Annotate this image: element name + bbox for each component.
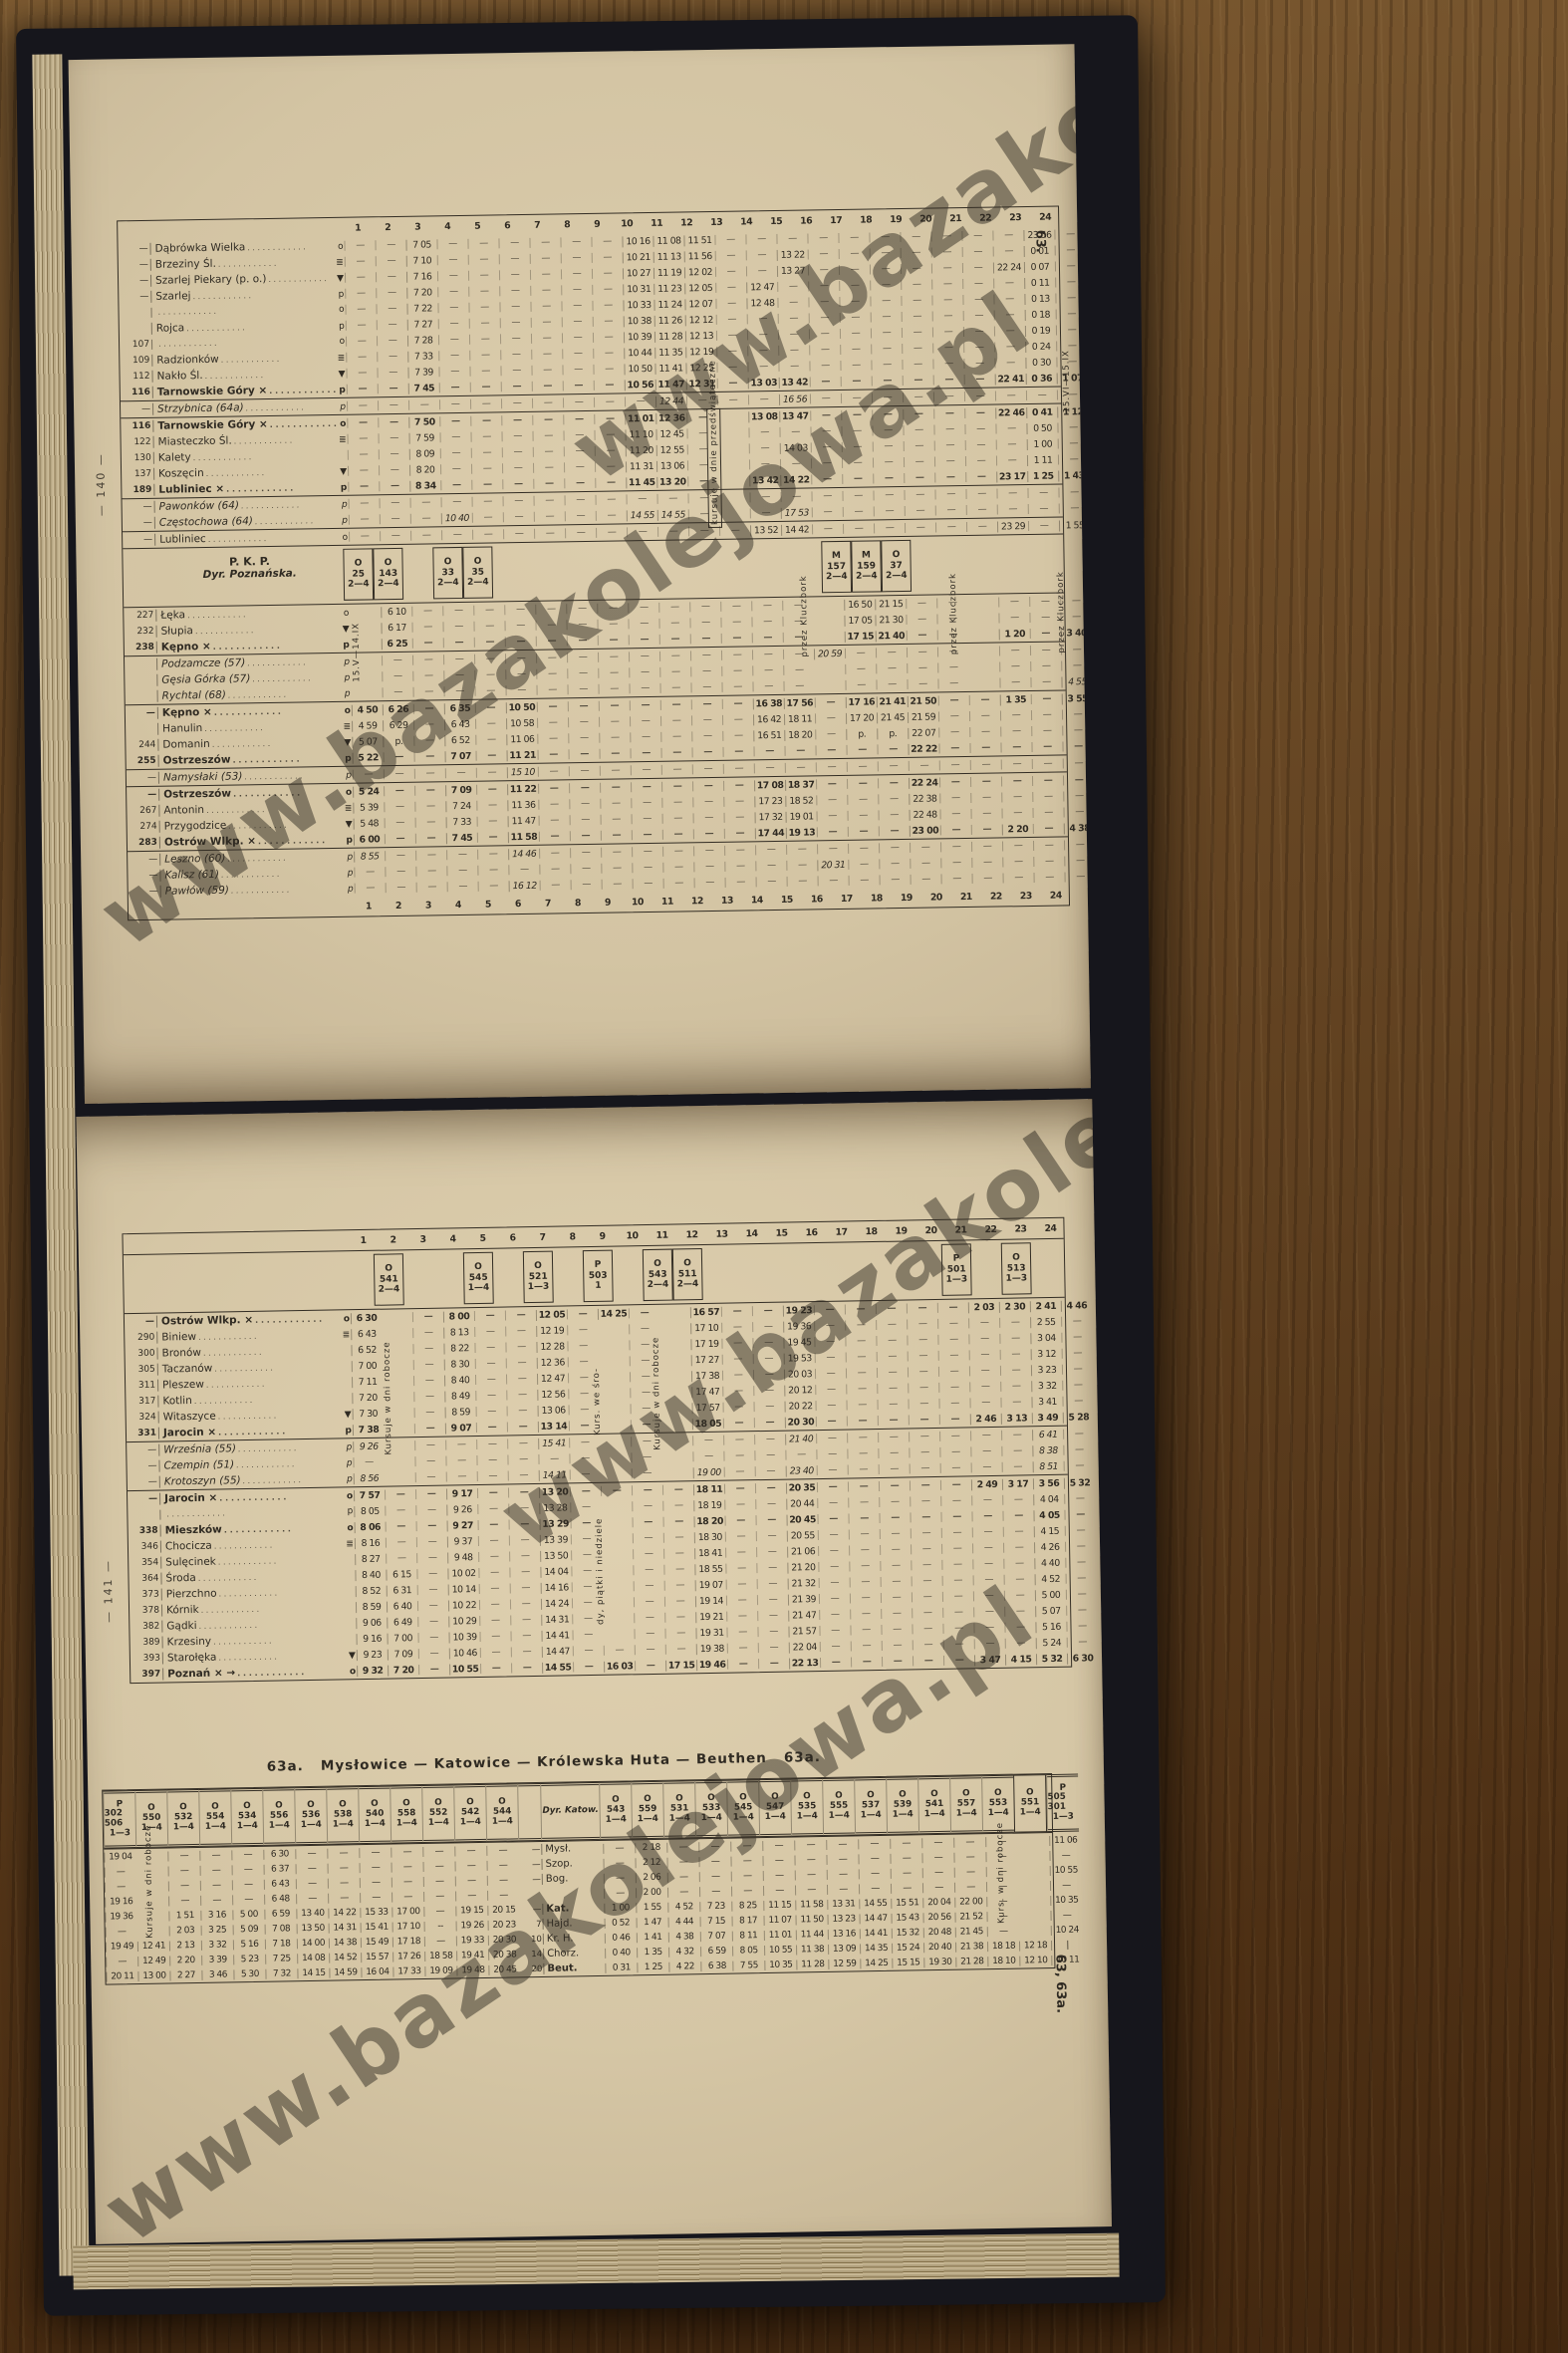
page-bottom: www.bazakolejowa.pl www.bazakolejowa.pl …: [76, 1099, 1112, 2244]
time-cell: —: [629, 667, 659, 677]
time-cell: —: [631, 748, 661, 758]
time-cell: —: [840, 328, 871, 338]
time-cell: —: [379, 481, 409, 491]
time-cell: 10 40: [441, 512, 472, 523]
time-cell: —: [437, 287, 468, 297]
time-cell: —: [1033, 856, 1064, 866]
train-number-box: M1572—4: [821, 541, 852, 593]
time-cell: —: [756, 877, 787, 887]
time-cell: —: [810, 393, 841, 403]
time-cell: —: [847, 794, 878, 804]
time-cell: —: [663, 878, 694, 888]
time-cell: 12 48: [746, 297, 777, 308]
time-cell: 15 33: [360, 1907, 392, 1918]
time-cell: —: [664, 1596, 695, 1607]
time-cell: —: [500, 318, 531, 328]
km-value: 10: [520, 1934, 543, 1944]
dot-leader: . . . . . . . . . . . .: [203, 370, 339, 381]
time-cell: —: [631, 782, 661, 792]
time-cell: —: [814, 1321, 845, 1332]
time-cell: —: [477, 816, 508, 826]
time-cell: —: [505, 669, 536, 679]
time-cell: —: [385, 834, 415, 844]
time-cell: —: [902, 359, 932, 369]
km-value: 267: [127, 806, 158, 817]
time-cell: —: [386, 1537, 416, 1548]
km-value: 112: [121, 372, 152, 383]
time-cell: —: [794, 1854, 826, 1865]
time-cell: —: [560, 237, 591, 247]
time-cell: —: [469, 350, 500, 360]
train-number-box: O352—4: [462, 546, 493, 598]
time-cell: 19 36: [105, 1912, 136, 1923]
time-cell: 13 20: [539, 1486, 570, 1498]
time-cell: —: [1032, 807, 1063, 817]
time-cell: —: [935, 522, 966, 532]
time-cell: 7 08: [265, 1924, 297, 1935]
time-cell: 9 16: [357, 1633, 388, 1645]
time-cell: —: [501, 398, 532, 408]
dot-leader: . . . . . . . . . . . .: [204, 1378, 351, 1390]
time-cell: —: [842, 457, 873, 467]
time-cell: —: [815, 1353, 846, 1364]
time-cell: —: [753, 746, 784, 756]
time-cell: —: [1062, 1380, 1093, 1391]
time-cell: —: [934, 456, 965, 466]
time-cell: —: [722, 1370, 753, 1381]
time-cell: —: [531, 333, 562, 343]
time-cell: —: [968, 1334, 999, 1345]
time-cell: —: [232, 1864, 264, 1875]
train-category: O: [444, 558, 452, 568]
time-cell: 21 39: [788, 1594, 819, 1606]
time-cell: 17 47: [691, 1386, 722, 1398]
time-cell: —: [994, 326, 1025, 336]
time-cell: 22 48: [909, 809, 939, 820]
time-cell: —: [939, 760, 970, 770]
time-cell: —: [757, 1627, 788, 1638]
time-cell: 4 52: [1035, 1573, 1066, 1585]
km-value: 305: [126, 1365, 157, 1376]
time-cell: 8 59: [445, 1407, 476, 1419]
time-cell: —: [699, 1871, 731, 1882]
train-number: 33: [441, 568, 454, 579]
time-cell: 3 32: [201, 1940, 233, 1951]
station-cell: Łęka. . . . . . . . . . . .o: [155, 607, 350, 622]
time-cell: —: [475, 702, 506, 712]
time-cell: —: [656, 493, 687, 503]
arrival-departure-mark: p: [345, 689, 352, 699]
train-number: 521: [529, 1272, 548, 1283]
time-cell: —: [503, 529, 534, 539]
time-cell: 13 40: [296, 1908, 328, 1919]
arrival-departure-mark: ≣: [346, 1539, 355, 1549]
time-cell: 11 26: [654, 315, 685, 326]
time-cell: —: [593, 364, 624, 374]
time-cell: [598, 1329, 629, 1330]
train-header: O5591—4: [631, 1781, 663, 1840]
time-cell: 18 58: [424, 1951, 456, 1961]
time-cell: —: [632, 830, 662, 840]
time-cell: —: [1001, 759, 1032, 769]
time-cell: —: [168, 1880, 200, 1891]
station-name: Pleszew: [162, 1379, 204, 1392]
train-class: 1—4: [701, 1814, 722, 1824]
column-number: 21: [951, 891, 981, 902]
time-cell: 8 38: [1032, 1444, 1063, 1456]
time-cell: —: [422, 1846, 454, 1857]
time-cell: —: [1066, 1605, 1097, 1616]
spacer: [124, 1244, 155, 1245]
time-cell: —: [934, 489, 965, 499]
time-cell: —: [471, 479, 502, 489]
time-cell: —: [561, 285, 592, 295]
time-cell: —: [722, 714, 753, 724]
time-cell: —: [809, 361, 840, 371]
time-cell: 15 57: [361, 1952, 392, 1962]
train-header: O5371—4: [854, 1777, 887, 1836]
time-cell: —: [938, 1398, 969, 1409]
time-cell: —: [968, 1318, 999, 1329]
time-cell: —: [665, 1644, 696, 1655]
dot-leader: . . . . . . . . . . . .: [204, 467, 341, 478]
train-class: 1—4: [269, 1821, 290, 1831]
time-cell: —: [715, 250, 746, 260]
time-cell: —: [424, 1936, 456, 1947]
time-cell: —: [594, 396, 625, 406]
time-cell: [1018, 1886, 1050, 1887]
time-cell: —: [966, 505, 997, 515]
time-cell: 6 31: [387, 1585, 417, 1597]
time-cell: —: [940, 858, 971, 868]
time-cell: —: [475, 718, 506, 728]
time-cell: 9 26: [353, 1440, 384, 1452]
time-cell: 10 27: [623, 267, 653, 278]
time-cell: —: [724, 812, 755, 822]
time-cell: —: [752, 633, 783, 643]
time-cell: —: [385, 851, 415, 861]
time-cell: —: [840, 312, 871, 322]
time-cell: —: [438, 319, 469, 329]
time-cell: —: [715, 266, 746, 276]
time-cell: 8 22: [443, 1343, 474, 1355]
time-cell: 6 43: [264, 1879, 296, 1890]
time-cell: —: [845, 1336, 876, 1347]
time-cell: —: [446, 866, 477, 876]
time-cell: 14 41: [541, 1630, 572, 1642]
column-number: 19: [886, 1225, 915, 1237]
dot-leader: . . . . . . . . . . . .: [245, 242, 338, 252]
time-cell: 0 19: [1025, 325, 1056, 336]
time-cell: 15 10: [507, 766, 538, 777]
time-cell: —: [932, 311, 963, 321]
time-cell: —: [750, 508, 781, 518]
dot-leader: . . . . . . . . . . . .: [242, 771, 346, 782]
time-cell: —: [849, 1561, 880, 1572]
time-cell: 17 10: [690, 1322, 721, 1334]
time-cell: —: [694, 878, 725, 888]
time-cell: 6 35: [444, 702, 475, 713]
time-cell: 2 55: [1030, 1316, 1061, 1328]
time-cell: —: [903, 424, 933, 434]
title-63a-left: 63a.: [267, 1758, 304, 1775]
station-name: Kępno ×: [161, 641, 211, 654]
time-cell: [603, 1602, 634, 1603]
time-cell: 17 16: [846, 696, 877, 707]
page-number-left: — 140 —: [94, 452, 108, 516]
time-cell: —: [969, 694, 1000, 704]
column-number: 2: [379, 1234, 408, 1246]
time-cell: —: [691, 699, 722, 709]
time-cell: —: [938, 695, 969, 705]
time-cell: 10 02: [447, 1568, 478, 1580]
time-cell: [661, 1408, 692, 1409]
time-cell: —: [377, 368, 407, 378]
time-cell: —: [747, 314, 778, 324]
time-cell: —: [763, 1885, 795, 1896]
time-cell: —: [882, 1656, 913, 1667]
time-cell: —: [902, 343, 932, 353]
train-class: 2—4: [437, 578, 459, 589]
time-cell: 7 16: [406, 271, 437, 282]
time-cell: 1 12: [1057, 406, 1088, 417]
time-cell: —: [538, 783, 569, 793]
time-cell: —: [938, 743, 969, 753]
time-cell: —: [502, 463, 533, 473]
time-cell: —: [851, 1641, 882, 1652]
time-cell: —: [721, 1322, 752, 1333]
time-cell: 7 30: [353, 1408, 384, 1420]
time-cell: 13 28: [539, 1502, 570, 1514]
time-cell: 12 36: [655, 412, 686, 423]
arrival-departure-mark: ▼: [337, 274, 345, 284]
time-cell: —: [469, 366, 500, 376]
time-cell: 10 33: [623, 299, 653, 310]
station-cell: Gęsia Górka (57). . . . . . . . . . . .p: [156, 671, 351, 686]
km-value: [125, 664, 156, 665]
time-cell: 2 41: [1030, 1300, 1061, 1312]
time-cell: 11 24: [653, 299, 684, 310]
time-cell: —: [1004, 1622, 1035, 1633]
time-cell: 20 55: [787, 1530, 818, 1542]
time-cell: —: [663, 1532, 694, 1543]
time-cell: 14 15: [297, 1967, 329, 1978]
time-cell: 13 00: [137, 1970, 169, 1981]
time-cell: —: [470, 431, 501, 441]
time-cell: —: [993, 278, 1024, 288]
time-cell: —: [847, 1448, 878, 1459]
time-cell: —: [598, 667, 629, 677]
time-cell: 12 13: [685, 330, 716, 341]
time-cell: —: [532, 381, 563, 391]
time-cell: 0 13: [1024, 293, 1055, 304]
time-cell: —: [510, 1599, 541, 1610]
column-number: 16: [802, 894, 832, 905]
time-cell: —: [455, 1875, 487, 1886]
time-cell: —: [573, 1646, 604, 1657]
train-class: 1—4: [492, 1817, 513, 1827]
time-cell: 7 45: [446, 832, 477, 843]
time-cell: —: [567, 1309, 598, 1320]
train-number-box: P5011—3: [941, 1243, 972, 1296]
time-cell: —: [442, 622, 473, 632]
time-cell: 18 10: [987, 1956, 1019, 1966]
time-cell: —: [536, 653, 567, 662]
time-cell: 14 35: [860, 1943, 892, 1954]
time-cell: 19 33: [456, 1935, 488, 1946]
time-cell: 12 12: [685, 314, 716, 325]
time-cell: —: [931, 295, 962, 305]
time-cell: 20 38: [488, 1950, 520, 1961]
time-cell: —: [591, 236, 622, 246]
train-class: 1—4: [173, 1823, 194, 1833]
time-cell: —: [911, 1560, 941, 1571]
time-cell: —: [564, 446, 595, 456]
train-class: 1—4: [365, 1820, 386, 1830]
time-cell: —: [473, 621, 504, 631]
time-cell: 2 18: [635, 1842, 666, 1853]
time-cell: 16 38: [753, 697, 784, 708]
time-cell: 20 48: [923, 1927, 955, 1938]
time-cell: —: [724, 828, 755, 838]
time-cell: —: [1000, 742, 1031, 752]
time-cell: —: [566, 620, 597, 630]
time-cell: —: [757, 1595, 788, 1606]
time-cell: —: [811, 491, 842, 501]
time-cell: 10 39: [624, 331, 654, 342]
time-cell: —: [1056, 341, 1087, 351]
station-name: Września (55): [163, 1442, 236, 1455]
time-cell: —: [440, 464, 471, 474]
time-cell: —: [468, 270, 499, 280]
km-value: 324: [127, 1413, 158, 1424]
time-cell: —: [506, 1374, 537, 1385]
train-number: 545: [469, 1273, 488, 1284]
time-cell: —: [877, 744, 908, 754]
train-number: 511: [678, 1269, 697, 1280]
column-number: 12: [676, 1228, 706, 1240]
time-cell: 4 50: [352, 704, 383, 715]
time-cell: 23 00: [910, 825, 940, 836]
train-class: 1—4: [988, 1809, 1009, 1819]
time-cell: —: [473, 605, 504, 615]
time-cell: —: [664, 1628, 695, 1639]
train-class: 1—4: [301, 1821, 322, 1831]
column-number: 8: [563, 897, 593, 908]
time-cell: —: [666, 1857, 698, 1868]
time-cell: —: [969, 742, 1000, 752]
time-cell: —: [501, 415, 532, 425]
time-cell: —: [763, 1870, 795, 1881]
station-cell: Września (55). . . . . . . . . . . .p: [158, 1440, 353, 1455]
time-cell: —: [785, 1449, 816, 1460]
time-cell: 19 09: [424, 1965, 456, 1976]
km-value: 116: [121, 421, 152, 432]
time-cell: —: [751, 617, 782, 627]
time-cell: [660, 1392, 691, 1393]
time-cell: —: [510, 1631, 541, 1642]
time-cell: —: [167, 1850, 199, 1861]
time-cell: 18 19: [693, 1499, 724, 1511]
station-name: Rojca: [156, 322, 185, 334]
time-cell: 13 06: [538, 1405, 569, 1417]
time-cell: —: [659, 651, 690, 660]
train-header: O5391—4: [886, 1776, 918, 1835]
arrival-departure-mark: p: [339, 386, 347, 395]
time-cell: —: [380, 498, 410, 508]
dot-leader: . . . . . . . . . . . .: [232, 435, 339, 446]
time-cell: —: [691, 715, 722, 725]
time-cell: —: [931, 263, 962, 273]
time-cell: —: [474, 1311, 505, 1322]
time-cell: —: [873, 490, 904, 500]
time-cell: 19 04: [104, 1852, 135, 1863]
time-cell: —: [994, 342, 1025, 352]
time-cell: 5 28: [1063, 1412, 1094, 1424]
time-cell: —: [756, 1563, 787, 1574]
km-value: 393: [131, 1654, 162, 1665]
time-cell: —: [379, 465, 409, 475]
time-cell: —: [693, 862, 724, 872]
station-name: Szarlej: [155, 290, 190, 303]
time-cell: —: [873, 441, 904, 451]
station-name: Szop.: [541, 1858, 603, 1870]
train-class: 1—4: [638, 1815, 658, 1825]
time-cell: —: [876, 648, 907, 657]
time-cell: —: [762, 1855, 794, 1866]
time-cell: —: [1001, 808, 1032, 818]
km-value: —: [127, 790, 158, 801]
time-cell: 5 16: [233, 1939, 265, 1950]
time-cell: —: [500, 334, 531, 344]
time-cell: —: [446, 1471, 477, 1482]
time-cell: —: [970, 1431, 1001, 1441]
station-name: Antonin: [163, 804, 204, 817]
time-cell: 2 03: [169, 1925, 201, 1936]
time-cell: —: [392, 1862, 423, 1873]
train-number: 157: [827, 562, 846, 573]
time-cell: 6 00: [354, 834, 385, 845]
time-cell: —: [724, 1466, 755, 1477]
time-cell: —: [570, 831, 601, 841]
time-cell: —: [755, 861, 786, 871]
km-value: 311: [126, 1381, 157, 1392]
time-cell: —: [537, 717, 568, 727]
time-cell: —: [510, 1583, 541, 1594]
time-cell: —: [508, 1487, 539, 1498]
time-cell: —: [437, 303, 468, 313]
column-number: 17: [826, 1226, 856, 1238]
column-number: 10: [623, 896, 653, 907]
time-cell: 17 27: [691, 1354, 722, 1366]
time-cell: —: [412, 1344, 443, 1355]
station-cell: Ostrów Wlkp. ×. . . . . . . . . . . .o: [156, 1312, 351, 1327]
time-cell: 8 27: [355, 1553, 386, 1565]
time-cell: 19 49: [106, 1942, 137, 1953]
time-cell: —: [745, 234, 776, 244]
station-cell: Podzamcze (57). . . . . . . . . . . .p: [156, 655, 351, 670]
time-cell: —: [384, 752, 414, 762]
time-cell: 3 13: [1001, 1413, 1032, 1425]
time-cell: —: [939, 777, 970, 787]
time-cell: —: [811, 474, 842, 484]
time-cell: —: [747, 346, 778, 356]
time-cell: —: [971, 1495, 1002, 1506]
time-cell: 8 56: [354, 1472, 385, 1484]
time-cell: 13 29: [540, 1518, 571, 1530]
time-cell: 3 55: [1062, 693, 1091, 704]
time-cell: —: [795, 1869, 827, 1880]
